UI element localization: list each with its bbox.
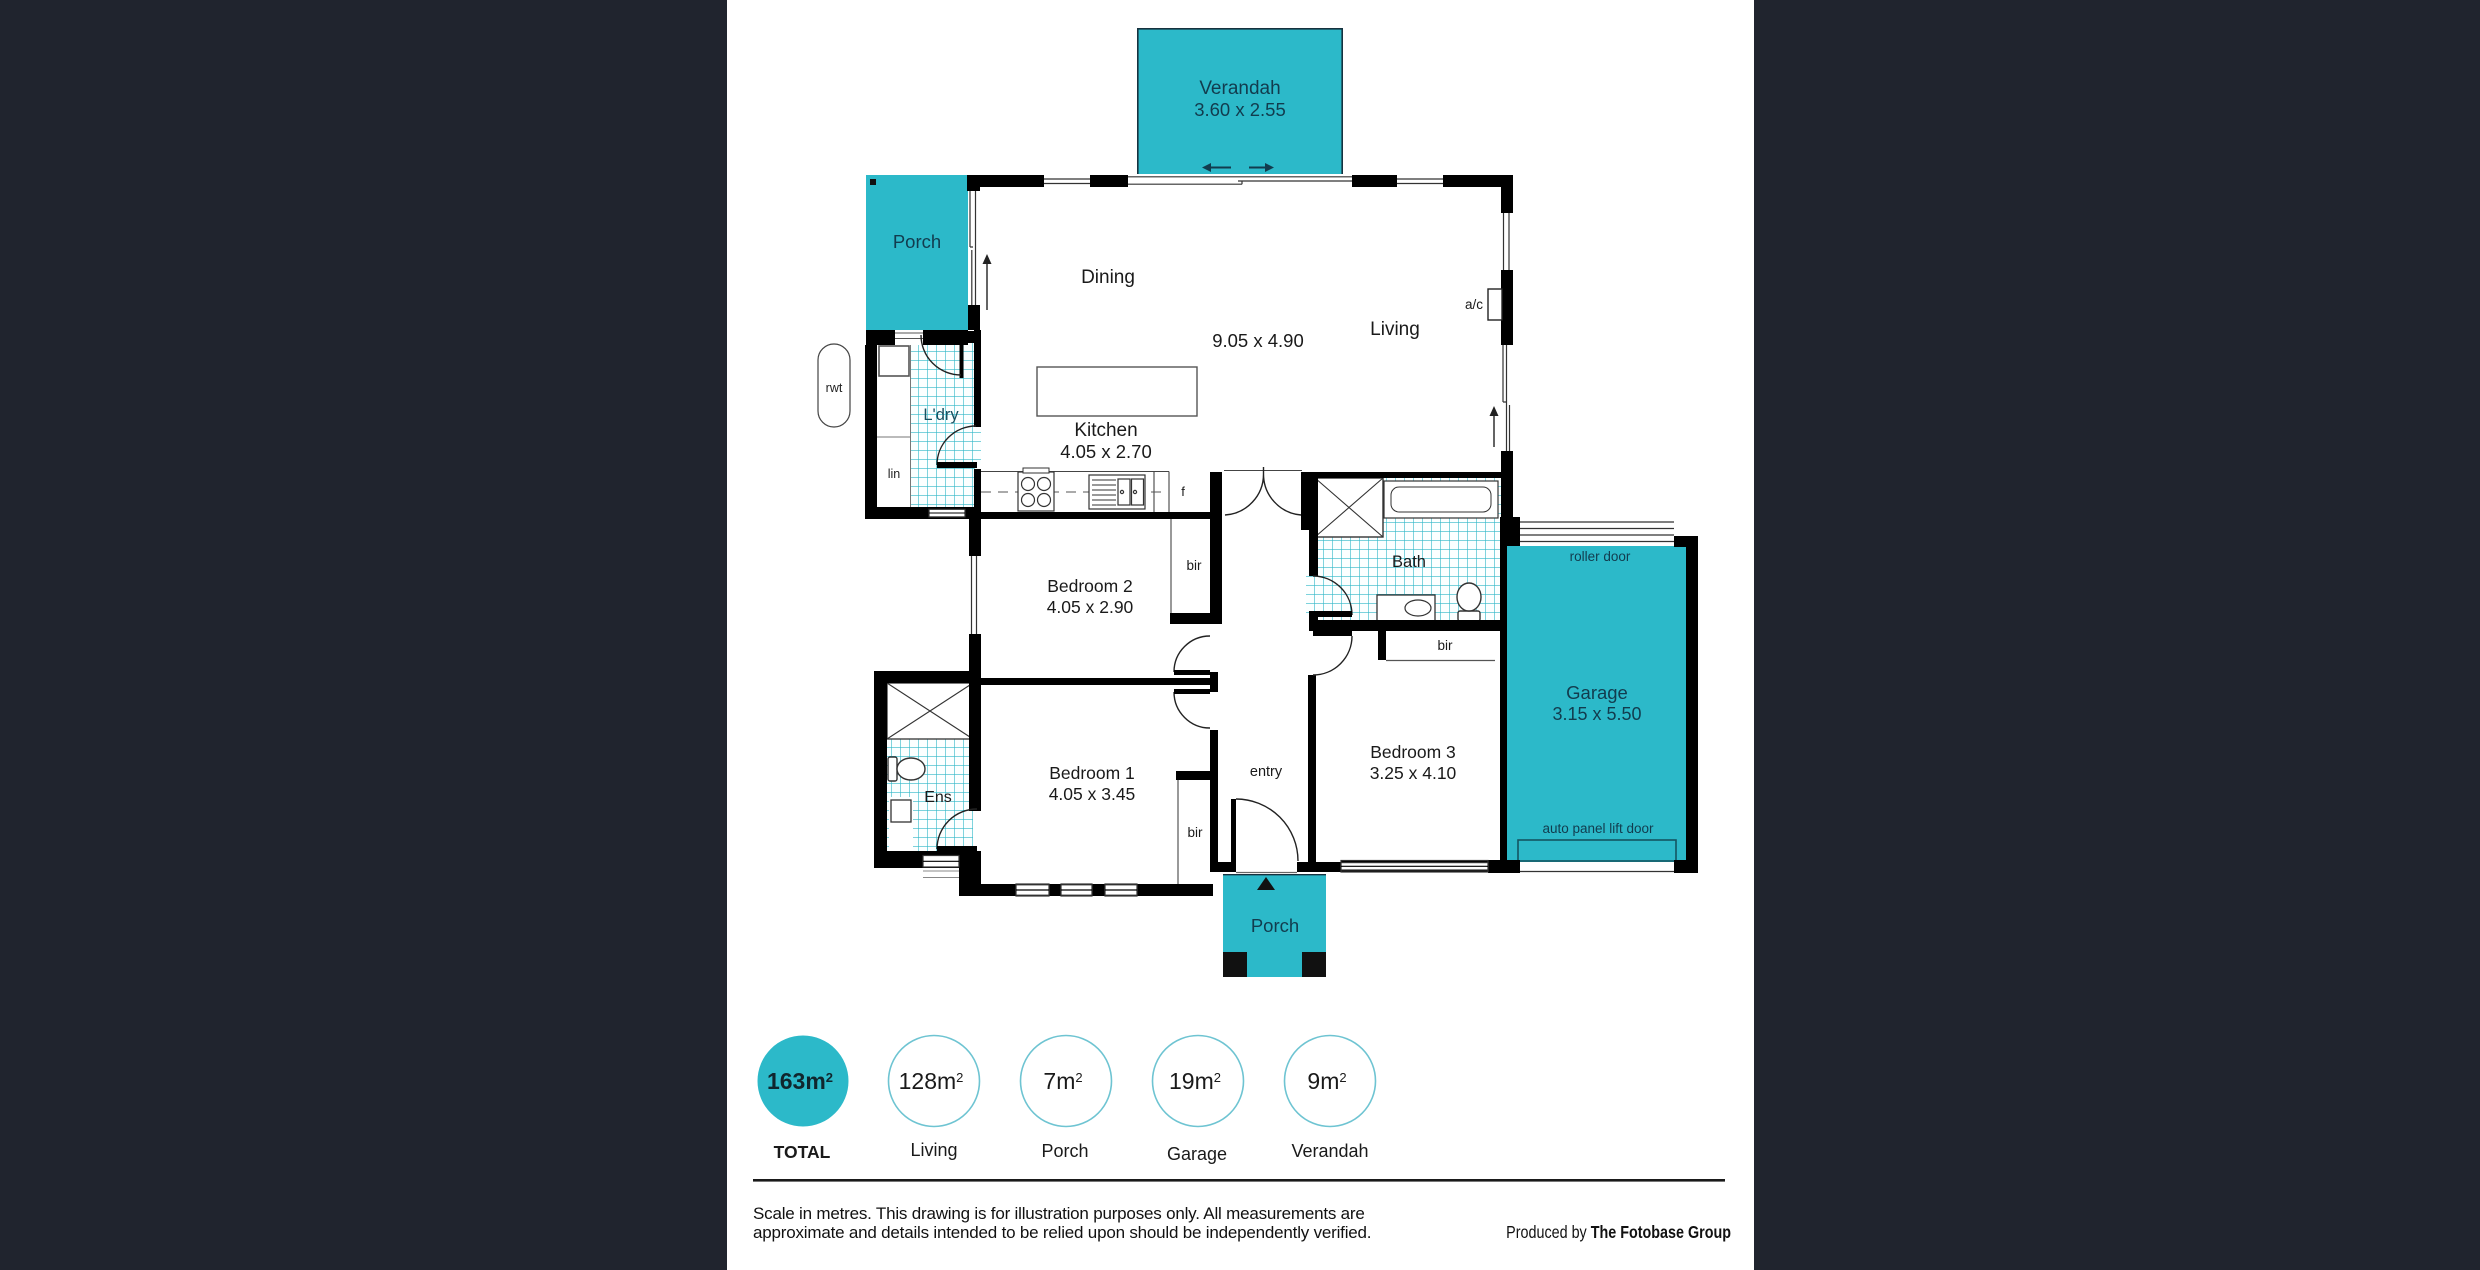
svg-text:Bedroom 3: Bedroom 3 xyxy=(1370,742,1456,762)
svg-text:3.25 x 4.10: 3.25 x 4.10 xyxy=(1370,763,1457,783)
svg-text:Bedroom 2: Bedroom 2 xyxy=(1047,576,1133,596)
svg-text:rwt: rwt xyxy=(826,381,843,395)
svg-text:L'dry: L'dry xyxy=(923,406,959,424)
svg-text:3.60 x 2.55: 3.60 x 2.55 xyxy=(1194,99,1286,120)
svg-text:Ens: Ens xyxy=(924,789,952,806)
svg-text:128m2: 128m2 xyxy=(899,1068,964,1094)
svg-text:auto panel lift door: auto panel lift door xyxy=(1542,821,1654,836)
svg-text:Porch: Porch xyxy=(893,231,941,252)
svg-text:19m2: 19m2 xyxy=(1169,1068,1221,1094)
svg-text:TOTAL: TOTAL xyxy=(774,1142,831,1162)
svg-text:Porch: Porch xyxy=(1251,915,1299,936)
svg-text:4.05 x 2.90: 4.05 x 2.90 xyxy=(1047,597,1134,617)
svg-text:roller door: roller door xyxy=(1570,549,1631,564)
svg-text:Scale in metres. This drawing: Scale in metres. This drawing is for ill… xyxy=(753,1204,1365,1223)
svg-text:bir: bir xyxy=(1186,558,1202,573)
svg-text:Bedroom 1: Bedroom 1 xyxy=(1049,763,1135,783)
svg-text:approximate and details intend: approximate and details intended to be r… xyxy=(753,1223,1371,1242)
svg-text:163m2: 163m2 xyxy=(767,1068,833,1094)
svg-text:f: f xyxy=(1181,484,1185,499)
svg-text:bir: bir xyxy=(1437,638,1453,653)
svg-text:Garage: Garage xyxy=(1167,1144,1227,1164)
svg-text:Kitchen: Kitchen xyxy=(1074,420,1137,441)
svg-text:Dining: Dining xyxy=(1081,267,1135,288)
svg-text:a/c: a/c xyxy=(1465,297,1483,312)
svg-text:Bath: Bath xyxy=(1392,553,1426,571)
svg-text:Verandah: Verandah xyxy=(1199,78,1280,99)
svg-text:3.15 x 5.50: 3.15 x 5.50 xyxy=(1552,704,1641,724)
svg-text:Verandah: Verandah xyxy=(1291,1141,1368,1161)
svg-text:Living: Living xyxy=(910,1140,957,1160)
svg-text:bir: bir xyxy=(1187,825,1203,840)
svg-text:Porch: Porch xyxy=(1041,1141,1088,1161)
svg-text:Garage: Garage xyxy=(1566,682,1628,703)
svg-text:Produced by The Fotobase Group: Produced by The Fotobase Group xyxy=(1506,1224,1731,1243)
svg-text:9.05 x 4.90: 9.05 x 4.90 xyxy=(1212,330,1304,351)
svg-text:lin: lin xyxy=(888,467,901,481)
svg-text:4.05 x 3.45: 4.05 x 3.45 xyxy=(1049,784,1136,804)
svg-text:entry: entry xyxy=(1250,764,1283,780)
svg-text:Living: Living xyxy=(1370,319,1420,340)
svg-text:4.05 x 2.70: 4.05 x 2.70 xyxy=(1060,441,1152,462)
